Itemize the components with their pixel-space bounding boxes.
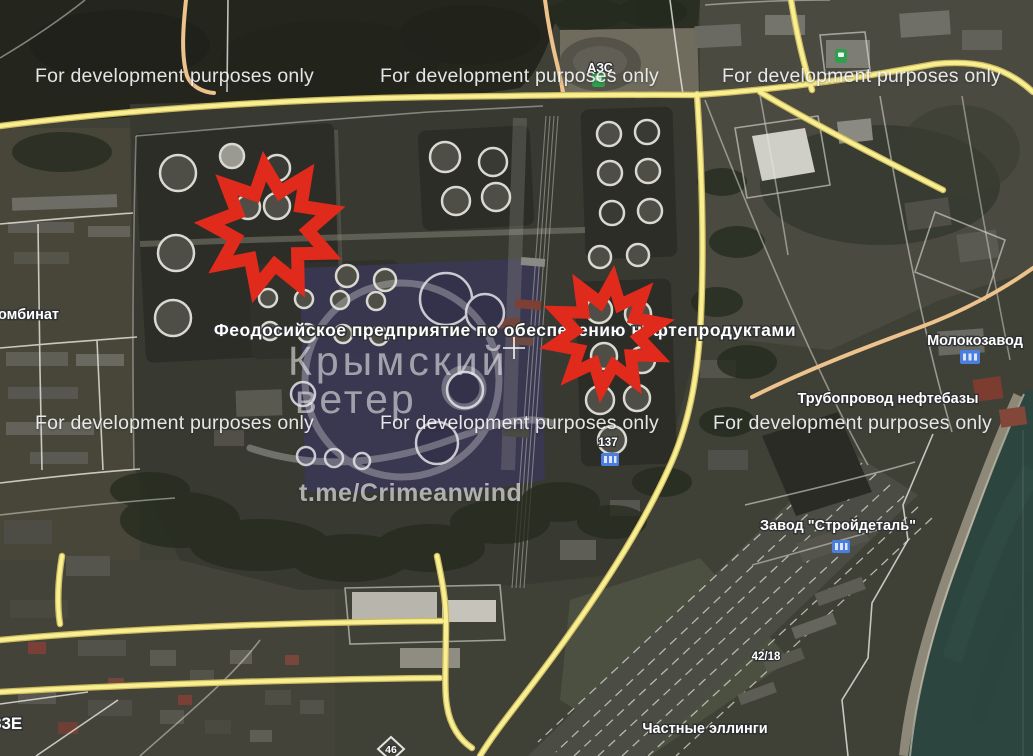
- dev-watermark-3: For development purposes only: [722, 65, 1001, 88]
- map-canvas[interactable]: АЗС Феодосийское предприятие по обеспече…: [0, 0, 1033, 756]
- brand-watermark-line2: ветер: [295, 376, 417, 423]
- road-label-83e: 83Е: [0, 714, 22, 733]
- address-label-137: 137: [598, 437, 617, 449]
- dev-watermark-6: For development purposes only: [713, 412, 992, 435]
- store-icon[interactable]: [835, 49, 847, 63]
- dev-watermark-2: For development purposes only: [380, 65, 659, 88]
- stroydetal-icon[interactable]: [832, 540, 850, 553]
- milk-plant-icon[interactable]: [960, 350, 980, 364]
- poi-label-facility[interactable]: Феодосийское предприятие по обеспечению …: [214, 320, 796, 340]
- poi-label-stroydetal[interactable]: Завод "Стройдеталь": [760, 518, 916, 534]
- area-label-boathouses[interactable]: Частные эллинги: [642, 721, 767, 737]
- area-label-pipeline[interactable]: Трубопровод нефтебазы: [797, 391, 978, 407]
- dev-watermark-5: For development purposes only: [380, 412, 659, 435]
- telegram-watermark: t.me/Crimeanwind: [299, 479, 522, 508]
- dev-watermark-1: For development purposes only: [35, 65, 314, 88]
- dev-watermark-4: For development purposes only: [35, 412, 314, 435]
- map-viewport[interactable]: АЗС Феодосийское предприятие по обеспече…: [0, 0, 1033, 756]
- address-label-42-18: 42/18: [752, 651, 781, 663]
- address-label-46: 46: [385, 744, 397, 756]
- terrain-layer: [0, 0, 1033, 756]
- area-label-kombinat[interactable]: омбинат: [0, 307, 59, 323]
- building-137-icon[interactable]: [601, 453, 619, 466]
- poi-label-milk-plant[interactable]: Молокозавод: [927, 333, 1023, 349]
